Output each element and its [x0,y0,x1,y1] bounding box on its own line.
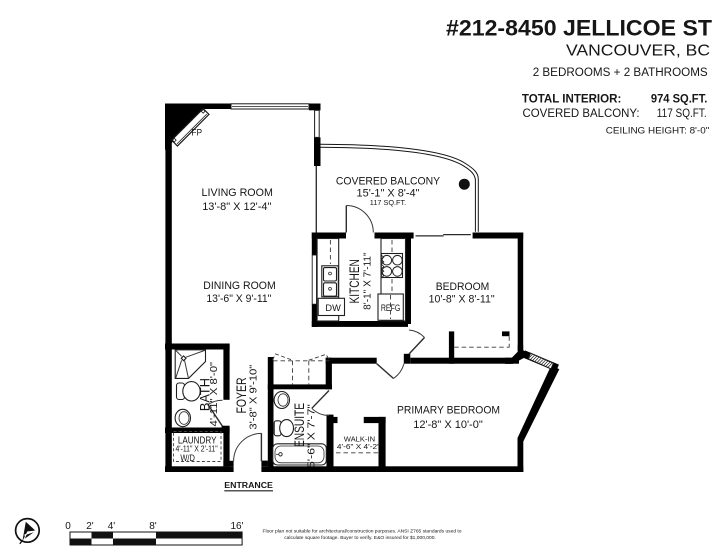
svg-text:REFG: REFG [381,303,401,313]
svg-text:PRIMARY BEDROOM: PRIMARY BEDROOM [397,404,500,416]
svg-text:FOYER: FOYER [233,377,249,413]
svg-text:Floor plan not suitable for ar: Floor plan not suitable for architectura… [263,529,462,535]
svg-text:KITCHEN: KITCHEN [347,259,362,303]
svg-text:calculate square footage. Buye: calculate square footage. Buyer to verif… [284,535,436,541]
svg-text:13'-6" X 9'-11": 13'-6" X 9'-11" [206,293,271,305]
svg-text:0: 0 [65,521,71,532]
svg-text:COVERED BALCONY: COVERED BALCONY [336,175,440,187]
svg-text:VANCOUVER, BC: VANCOUVER, BC [566,42,710,59]
svg-text:CEILING HEIGHT: 8'-0": CEILING HEIGHT: 8'-0" [606,126,709,136]
svg-text:WALK-IN: WALK-IN [344,434,375,443]
svg-text:2': 2' [86,521,94,532]
svg-text:ENTRANCE: ENTRANCE [224,481,273,490]
svg-text:#212-8450 JELLICOE ST: #212-8450 JELLICOE ST [446,16,713,41]
svg-text:TOTAL INTERIOR:: TOTAL INTERIOR: [522,91,621,105]
svg-text:FP: FP [191,128,202,138]
svg-text:2 BEDROOMS + 2 BATHROOMS: 2 BEDROOMS + 2 BATHROOMS [533,65,708,79]
svg-text:LIVING ROOM: LIVING ROOM [202,187,273,199]
svg-text:COVERED BALCONY:: COVERED BALCONY: [523,106,640,120]
svg-text:12'-8" X 10'-0": 12'-8" X 10'-0" [413,419,483,431]
svg-text:8': 8' [149,521,157,532]
svg-text:W/D: W/D [180,453,195,463]
svg-text:DW: DW [325,303,341,313]
svg-text:10'-8" X 8'-11": 10'-8" X 8'-11" [429,293,495,305]
svg-text:5'-6" X 7'-7": 5'-6" X 7'-7" [306,404,317,468]
svg-text:3'-8" X 9'-10": 3'-8" X 9'-10" [249,364,260,429]
svg-text:4'-6" X 4'-2": 4'-6" X 4'-2" [337,444,381,451]
svg-text:ENSUITE: ENSUITE [292,403,307,447]
svg-text:4'-11" X 8'-0": 4'-11" X 8'-0" [209,362,220,427]
svg-text:13'-8" X 12'-4": 13'-8" X 12'-4" [202,201,271,213]
svg-text:8'-1" X 7'-11": 8'-1" X 7'-11" [363,252,374,310]
svg-text:974 SQ.FT.: 974 SQ.FT. [651,91,707,105]
svg-text:BEDROOM: BEDROOM [436,281,490,293]
svg-text:117 SQ.FT.: 117 SQ.FT. [657,106,707,120]
svg-text:117 SQ.FT.: 117 SQ.FT. [370,198,406,207]
svg-text:4': 4' [108,521,116,532]
svg-text:16': 16' [230,521,243,532]
svg-text:DINING ROOM: DINING ROOM [203,280,275,292]
